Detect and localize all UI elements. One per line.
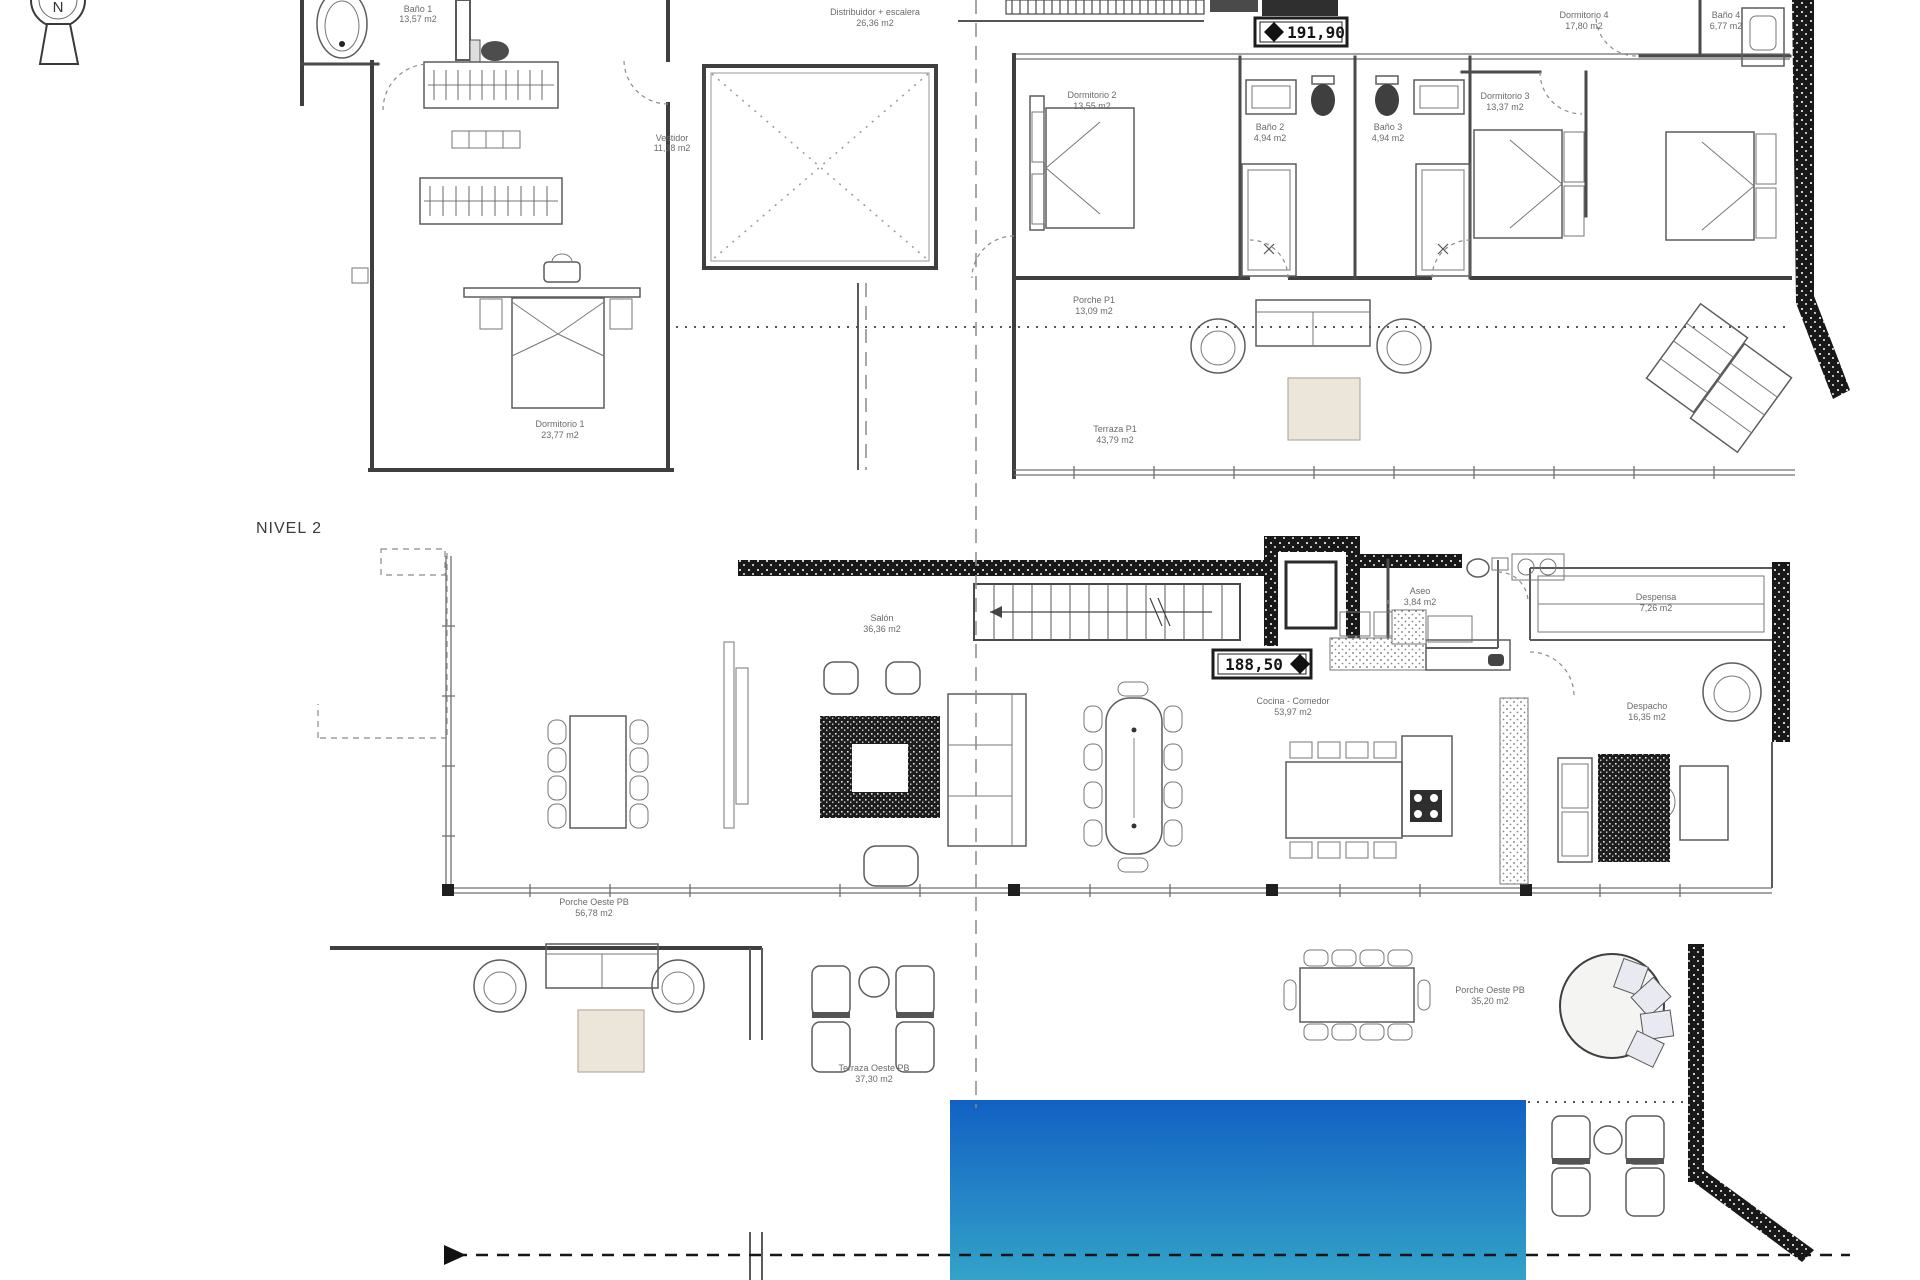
room-label-bano3-name: Baño 3 <box>1374 122 1403 132</box>
room-label-porche-oeste-pb2-area: 35,20 m2 <box>1471 996 1509 1006</box>
wardrobe-rail <box>420 178 562 224</box>
room-label-distribuidor-name: Distribuidor + escalera <box>830 7 920 17</box>
tv-sideboard <box>724 642 748 828</box>
level-marker-lower: 188,50 <box>1213 650 1311 678</box>
room-label-terraza-p1-area: 43,79 m2 <box>1096 435 1134 445</box>
terrace-rug <box>1288 378 1360 440</box>
room-label-terraza-oeste-pb-area: 37,30 m2 <box>855 1074 893 1084</box>
swimming-pool <box>950 1100 1526 1280</box>
room-label-dormitorio3-name: Dormitorio 3 <box>1480 91 1529 101</box>
room-label-distribuidor-area: 26,36 m2 <box>856 18 894 28</box>
porch-rug <box>578 1010 644 1072</box>
room-label-vestidor-name: Vestidor <box>656 133 689 143</box>
bed-dormitorio-4 <box>1666 132 1776 240</box>
bathroom2-fixtures <box>1242 76 1335 276</box>
dining-table-salon <box>548 716 648 828</box>
room-label-bano2-area: 4,94 m2 <box>1254 133 1287 143</box>
bathtub-icon <box>317 0 367 58</box>
room-label-dormitorio1-name: Dormitorio 1 <box>535 419 584 429</box>
bed-dormitorio-3 <box>1474 130 1584 238</box>
dining-table-comedor <box>1084 682 1182 872</box>
room-label-terraza-oeste-pb-name: Terraza Oeste PB <box>838 1063 909 1073</box>
level-marker-lower-value: 188,50 <box>1225 655 1283 674</box>
room-label-despacho-area: 16,35 m2 <box>1628 712 1666 722</box>
room-label-porche-p1-area: 13,09 m2 <box>1075 306 1113 316</box>
upper-level-walls <box>302 0 1850 479</box>
terrace-lounge-set <box>1191 300 1431 440</box>
despacho-rug <box>1598 754 1670 862</box>
stone-boundary-wall-upper <box>1792 0 1850 399</box>
room-label-dormitorio4-name: Dormitorio 4 <box>1559 10 1608 20</box>
room-label-porche-p1-name: Porche P1 <box>1073 295 1115 305</box>
toilet-icon <box>470 40 509 62</box>
round-daybed <box>1560 954 1674 1067</box>
wardrobe-rail <box>424 62 558 108</box>
north-arrow-icon: N <box>31 0 85 64</box>
salon-lounge-set <box>820 662 1026 886</box>
room-label-bano4-name: Baño 4 <box>1712 10 1741 20</box>
room-label-vestidor-area: 11,38 m2 <box>654 143 691 153</box>
room-label-salon-name: Salón <box>870 613 893 623</box>
upper-level-fixtures <box>317 0 1791 452</box>
terrace-chair-pair-right <box>1552 1116 1664 1216</box>
elevator-car <box>1286 562 1336 628</box>
room-label-bano3-area: 4,94 m2 <box>1372 133 1405 143</box>
section-arrow-icon <box>444 1245 466 1265</box>
staircase <box>974 584 1240 640</box>
door-swing-arcs-upper <box>383 16 1636 278</box>
upper-room-labels: Baño 1 13,57 m2 Vestidor 11,38 m2 Distri… <box>399 4 1742 445</box>
room-label-dormitorio4-area: 17,80 m2 <box>1565 21 1603 31</box>
level-marker-upper: 191,90 <box>1255 18 1347 46</box>
room-label-porche-oeste-pb-name: Porche Oeste PB <box>559 897 629 907</box>
floor-plan-drawing: N <box>0 0 1920 1280</box>
north-letter: N <box>53 0 64 16</box>
sun-loungers-upper <box>1647 304 1792 453</box>
room-label-salon-area: 36,36 m2 <box>863 624 901 634</box>
outdoor-dining-table <box>1284 950 1430 1040</box>
kitchen-tiled-wall <box>1500 698 1528 884</box>
room-label-despensa-name: Despensa <box>1636 592 1677 602</box>
room-label-aseo-name: Aseo <box>1410 586 1431 596</box>
level-marker-upper-value: 191,90 <box>1287 23 1345 42</box>
room-label-dormitorio2-name: Dormitorio 2 <box>1067 90 1116 100</box>
room-label-despensa-area: 7,26 m2 <box>1640 603 1673 613</box>
porch-lounge-set <box>474 944 704 1072</box>
cooktop-icon <box>1410 790 1442 822</box>
room-label-cocina-name: Cocina - Comedor <box>1256 696 1329 706</box>
room-label-bano1-area: 13,57 m2 <box>399 14 437 24</box>
room-label-dormitorio1-area: 23,77 m2 <box>541 430 579 440</box>
room-label-bano2-name: Baño 2 <box>1256 122 1285 132</box>
floor-plan-canvas: N <box>0 0 1920 1280</box>
room-label-bano4-area: 6,77 m2 <box>1710 21 1743 31</box>
room-label-terraza-p1-name: Terraza P1 <box>1093 424 1137 434</box>
bed-dormitorio-2 <box>1030 96 1134 230</box>
bed-dormitorio-1 <box>464 254 640 408</box>
level2-title: NIVEL 2 <box>256 520 322 537</box>
terrace-chair-pair-left <box>812 966 934 1072</box>
room-label-cocina-area: 53,97 m2 <box>1274 707 1312 717</box>
room-label-aseo-area: 3,84 m2 <box>1404 597 1437 607</box>
shelf-unit <box>452 131 520 148</box>
room-label-porche-oeste-pb-area: 56,78 m2 <box>575 908 613 918</box>
stone-boundary-wall-mid <box>1772 562 1790 742</box>
room-label-dormitorio3-area: 13,37 m2 <box>1486 102 1524 112</box>
room-label-despacho-name: Despacho <box>1627 701 1668 711</box>
room-label-dormitorio2-area: 13,55 m2 <box>1073 101 1111 111</box>
stone-boundary-wall-lower <box>1688 944 1704 1182</box>
room-label-porche-oeste-pb2-name: Porche Oeste PB <box>1455 985 1525 995</box>
bathroom3-fixtures <box>1375 76 1470 276</box>
despacho-furniture <box>1558 663 1761 862</box>
room-label-bano1-name: Baño 1 <box>404 4 433 14</box>
